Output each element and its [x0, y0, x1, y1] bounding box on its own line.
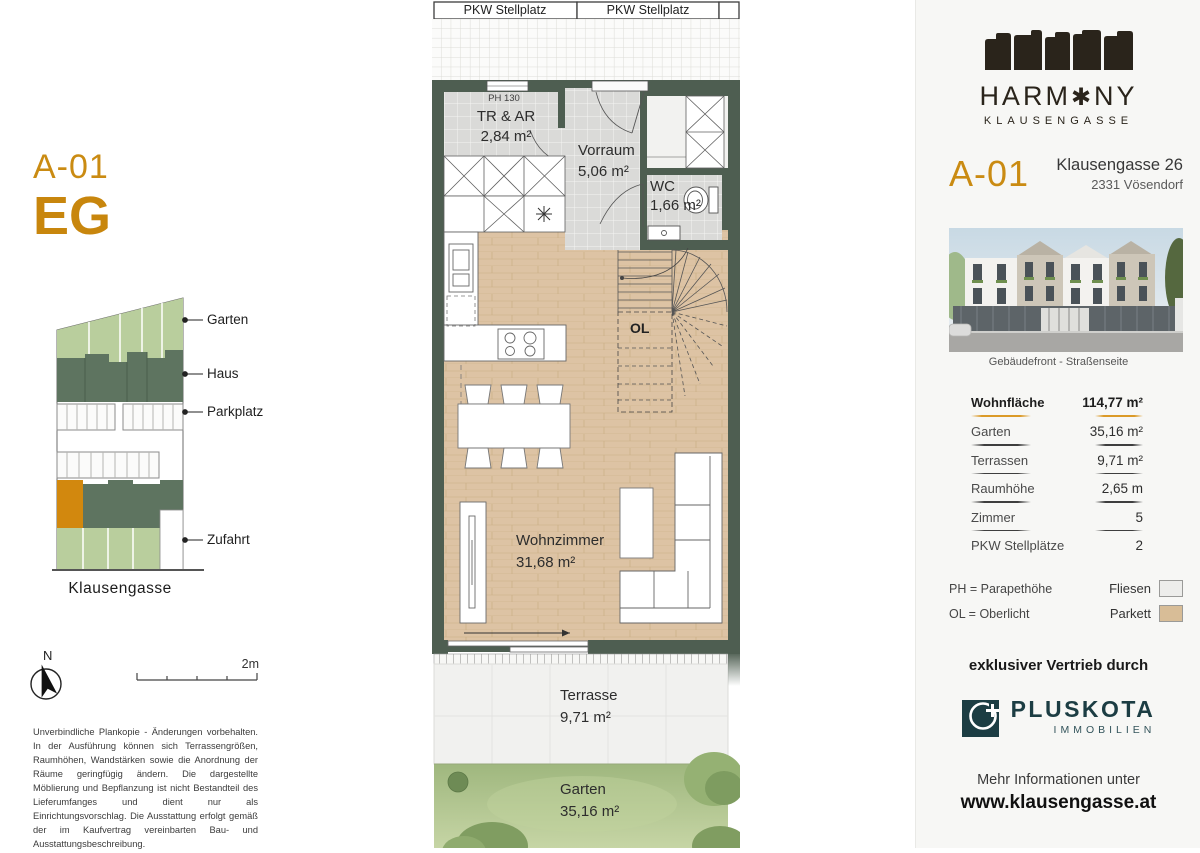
address: Klausengasse 26 2331 Vösendorf: [1056, 156, 1183, 192]
spec-label: PKW Stellplätze: [971, 538, 1064, 553]
site-legend-zufahrt: Zufahrt: [207, 532, 250, 547]
spec-row-terrassen: Terrassen 9,71 m²: [971, 446, 1143, 475]
site-legend-haus: Haus: [207, 366, 239, 381]
material-parkett-label: Parkett: [1110, 606, 1151, 621]
light-symbol-icon: [536, 206, 552, 222]
spec-row-wohnflaeche: Wohnfläche 114,77 m²: [971, 388, 1143, 417]
svg-text:2m: 2m: [242, 657, 259, 671]
spec-label: Terrassen: [971, 453, 1028, 468]
coffee-table: [620, 488, 653, 558]
spec-label: Zimmer: [971, 510, 1015, 525]
north-arrow-icon: N: [26, 648, 66, 708]
address-street: Klausengasse 26: [1056, 156, 1183, 175]
photo-caption: Gebäudefront - Straßenseite: [916, 356, 1200, 368]
svg-text:N: N: [43, 648, 52, 663]
flower-icon: ✱: [1071, 84, 1094, 111]
abbr-ol: OL = Oberlicht: [949, 607, 1029, 621]
spec-table: Wohnfläche 114,77 m² Garten 35,16 m² Ter…: [971, 388, 1143, 553]
material-fliesen-label: Fliesen: [1109, 581, 1151, 596]
spec-value: 2: [1135, 538, 1143, 553]
brand-block: HARM✱NY KLAUSENGASSE: [916, 30, 1200, 127]
site-plan-drawing: [52, 292, 204, 582]
spec-row-stellplaetze: PKW Stellplätze 2: [971, 531, 1143, 553]
panel-unit-code: A-01: [949, 156, 1029, 192]
fliesen-swatch: [1159, 580, 1183, 597]
pluskota-icon: [962, 698, 1002, 738]
broker-logo: PLUSKOTA IMMOBILIEN: [916, 698, 1200, 738]
spec-value: 9,71 m²: [1097, 453, 1143, 468]
broker-subtitle: IMMOBILIEN: [1011, 724, 1156, 736]
brand-name: HARM✱NY: [916, 81, 1200, 112]
scale-bar: 2m: [133, 656, 261, 686]
dining-set: [458, 385, 570, 468]
plan-legend: PH = Parapethöhe Fliesen OL = Oberlicht …: [949, 580, 1183, 630]
brand-name-right: NY: [1094, 81, 1138, 111]
spec-row-zimmer: Zimmer 5: [971, 503, 1143, 532]
spec-label: Raumhöhe: [971, 481, 1035, 496]
sideboard: [460, 502, 486, 623]
building-photo: [949, 228, 1183, 352]
left-column: A-01 EG: [0, 0, 430, 848]
pkw-boxes: [434, 2, 739, 19]
street-label: Klausengasse: [45, 580, 195, 598]
disclaimer-text: Unverbindliche Plankopie - Änderungen vo…: [33, 726, 258, 851]
site-legend-parkplatz: Parkplatz: [207, 404, 263, 419]
floor-plan: PKW Stellplatz PKW Stellplatz PH 130 TR …: [432, 0, 740, 848]
spec-value: 114,77 m²: [1082, 395, 1143, 410]
spec-value: 5: [1135, 510, 1143, 525]
unit-code: A-01: [33, 148, 111, 187]
spec-row-garten: Garten 35,16 m²: [971, 417, 1143, 446]
broker-name: PLUSKOTA: [1011, 698, 1156, 721]
unit-floor: EG: [33, 189, 111, 243]
spec-label: Wohnfläche: [971, 395, 1044, 410]
floor-plan-drawing: [432, 0, 740, 848]
parkett-swatch: [1159, 605, 1183, 622]
harmony-buildings-icon: [983, 30, 1135, 70]
brand-subtitle: KLAUSENGASSE: [916, 115, 1200, 127]
abbr-ph: PH = Parapethöhe: [949, 582, 1052, 596]
spec-value: 2,65 m: [1102, 481, 1143, 496]
brand-name-left: HARM: [979, 81, 1071, 111]
address-city: 2331 Vösendorf: [1056, 177, 1183, 192]
spec-label: Garten: [971, 424, 1011, 439]
info-panel: HARM✱NY KLAUSENGASSE A-01 Klausengasse 2…: [915, 0, 1200, 848]
spec-row-raumhoehe: Raumhöhe 2,65 m: [971, 474, 1143, 503]
unit-title: A-01 EG: [33, 148, 111, 243]
site-legend-garten: Garten: [207, 312, 248, 327]
unit-address-row: A-01 Klausengasse 26 2331 Vösendorf: [949, 156, 1183, 192]
wardrobe-right: [686, 96, 724, 168]
distribution-note: exklusiver Vertrieb durch: [916, 657, 1200, 674]
info-block: Mehr Informationen unter www.klausengass…: [916, 772, 1200, 814]
broker-text: PLUSKOTA IMMOBILIEN: [1011, 698, 1156, 736]
wardrobe-left: [444, 156, 565, 232]
more-info-text: Mehr Informationen unter: [916, 772, 1200, 788]
website-link[interactable]: www.klausengasse.at: [916, 792, 1200, 814]
spec-value: 35,16 m²: [1090, 424, 1143, 439]
